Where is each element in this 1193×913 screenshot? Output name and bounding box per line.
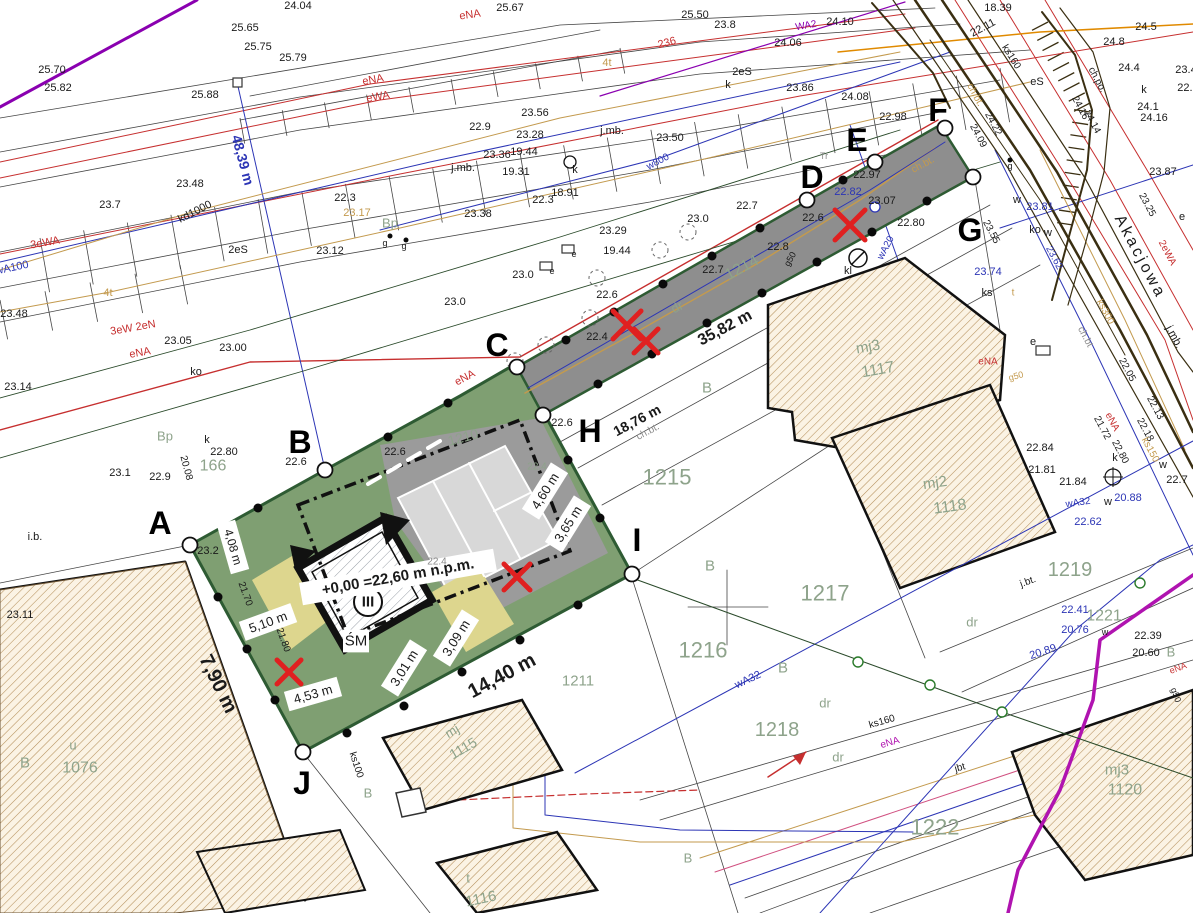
boundary-letter-B: B	[288, 424, 311, 460]
map-label: 23.50	[656, 132, 684, 144]
map-label: 23.8	[714, 19, 735, 31]
parcel-number-label: mj3	[1105, 762, 1129, 779]
map-label: 23.12	[316, 245, 344, 257]
map-label: 23.2	[197, 545, 218, 557]
map-label: e	[1179, 211, 1185, 223]
map-label: k	[204, 434, 210, 446]
survey-point-dot	[343, 729, 352, 738]
fence-post-symbol	[997, 707, 1007, 717]
map-label: i.b.	[28, 531, 43, 543]
map-label: w	[1101, 627, 1109, 637]
map-label: 22.84	[1026, 442, 1054, 454]
survey-point-dot	[868, 228, 877, 237]
parcel-number-label: t	[466, 871, 470, 886]
map-label: 22.9	[469, 121, 490, 133]
map-label: 23.11	[7, 609, 34, 621]
fence-post-symbol	[925, 680, 935, 690]
map-label: k	[1112, 452, 1118, 464]
map-label: 2eS	[732, 66, 752, 78]
map-label: 25.70	[38, 64, 66, 76]
parcel-number-label: 1219	[1048, 559, 1093, 581]
parcel-number-label: mj2	[922, 473, 948, 493]
map-label: 24.4	[1118, 62, 1139, 74]
map-label: 22.41	[1061, 604, 1089, 616]
map-label: g	[1007, 161, 1012, 171]
boundary-point-marker	[296, 745, 311, 760]
map-label: 22.98	[879, 111, 907, 123]
pole-dot	[388, 234, 393, 239]
map-label: 23.17	[343, 207, 371, 219]
map-label: 22.62	[1074, 516, 1102, 528]
parcel-number-label: Bp	[382, 216, 398, 231]
map-label: 23.0	[512, 269, 533, 281]
map-label: 23.56	[521, 107, 549, 119]
boundary-point-marker	[536, 408, 551, 423]
map-label: 22.5	[1177, 82, 1193, 94]
map-label: 23.0	[444, 296, 465, 308]
parcel-number-label: dr	[966, 615, 978, 630]
map-label: 20.76	[1061, 624, 1089, 636]
boundary-letter-J: J	[293, 765, 311, 801]
parcel-number-label: B	[1167, 645, 1176, 660]
boundary-letter-G: G	[958, 212, 983, 248]
map-label: 22.6	[802, 212, 823, 224]
boundary-letter-E: E	[846, 122, 867, 158]
boundary-letter-A: A	[148, 505, 171, 541]
map-label: w	[1158, 459, 1167, 471]
map-label: 23.86	[786, 82, 814, 94]
boundary-point-marker	[318, 463, 333, 478]
map-label: 25.67	[496, 2, 524, 14]
fence-post-symbol	[1135, 578, 1145, 588]
map-label: 22.7	[736, 200, 757, 212]
map-label: 23.48	[0, 308, 28, 320]
parcel-number-label: B	[20, 755, 30, 772]
map-label: 20.88	[1114, 492, 1142, 504]
map-label: 24.10	[826, 16, 854, 28]
survey-point-dot	[659, 280, 668, 289]
map-label: k	[725, 79, 731, 91]
map-label: 24.8	[1103, 36, 1124, 48]
boundary-point-marker	[510, 360, 525, 375]
fence-post-symbol	[853, 657, 863, 667]
parcel-number-label: dr	[832, 750, 844, 765]
survey-point-dot	[708, 252, 717, 261]
map-label: 19.31	[502, 166, 530, 178]
map-label: ks	[982, 287, 994, 299]
map-label: 23.87	[1149, 166, 1177, 178]
survey-point-dot	[564, 456, 573, 465]
parcel-number-label: B	[705, 558, 715, 575]
map-label: 23.00	[219, 342, 247, 354]
map-label: 4t	[103, 287, 112, 299]
survey-map-canvas: 25.7025.8225.6525.7525.7925.8824.04eNA25…	[0, 0, 1193, 913]
parcel-number-label: 1076	[62, 760, 98, 777]
map-label: eNA	[978, 357, 998, 368]
survey-point-dot	[400, 702, 409, 711]
map-label: t	[1012, 288, 1015, 299]
map-label: 22.82	[834, 186, 862, 198]
map-label: e	[1030, 336, 1036, 348]
map-label: 23.07	[868, 195, 896, 207]
map-label: 22.6	[384, 446, 405, 458]
map-label: 23.29	[599, 225, 627, 237]
boundary-point-marker	[966, 170, 981, 185]
map-label: e	[571, 249, 576, 259]
parcel-number-label: 1216	[679, 638, 728, 663]
parcel-number-label: 166	[200, 458, 227, 475]
map-label: 24.16	[1140, 112, 1168, 124]
map-label: g	[401, 241, 406, 251]
survey-point-dot	[271, 696, 280, 705]
map-label: 23.05	[164, 335, 192, 347]
map-label: 24.08	[841, 91, 869, 103]
map-label: 23.4	[1175, 64, 1193, 76]
survey-point-dot	[813, 258, 822, 267]
boundary-point-marker	[625, 567, 640, 582]
map-label: 22.7	[1166, 474, 1187, 486]
dimension-label: III	[362, 594, 375, 611]
map-label: 20.60	[1132, 647, 1160, 659]
parcel-number-label: 1211	[562, 673, 594, 690]
map-label: 22.4	[427, 557, 447, 568]
map-label: 23.74	[974, 266, 1002, 278]
map-label: 22.97	[853, 169, 881, 181]
parcel-number-label: 1218	[755, 719, 800, 741]
survey-point-dot	[758, 289, 767, 298]
map-label: 24.06	[774, 37, 802, 49]
map-label: eS	[1030, 76, 1043, 88]
survey-point-dot	[458, 668, 467, 677]
map-label: k	[572, 164, 578, 176]
map-label: 4t	[602, 57, 611, 69]
map-label: e	[549, 266, 554, 276]
survey-point-dot	[444, 399, 453, 408]
map-label: 24.5	[1135, 21, 1156, 33]
parcel-number-label: u	[69, 738, 76, 753]
survey-point-dot	[839, 176, 848, 185]
map-label: 23.0	[687, 213, 708, 225]
map-label: j.mb.	[599, 125, 624, 137]
map-label: 2eS	[228, 244, 248, 256]
parcel-number-label: B	[364, 786, 373, 801]
map-label: w	[1103, 496, 1112, 508]
map-label: 18.39	[984, 2, 1012, 14]
map-label: 22.80	[897, 217, 925, 229]
map-label: 22.80	[210, 446, 238, 458]
map-label: 22.4	[586, 331, 607, 343]
survey-point-dot	[214, 593, 223, 602]
map-label: 23.36	[483, 149, 511, 161]
map-label: 23.81	[1026, 201, 1054, 213]
boundary-letter-I: I	[633, 522, 642, 558]
map-label: 23.7	[99, 199, 120, 211]
map-label: 23.14	[4, 381, 32, 393]
parcel-number-label: 1215	[643, 465, 692, 490]
parcel-number-label: 1120	[1108, 782, 1143, 799]
map-label: 25.75	[244, 41, 272, 53]
map-label: 18.91	[551, 187, 579, 199]
map-label: 19.44	[603, 245, 631, 257]
map-label: 25.65	[231, 22, 259, 34]
survey-point-dot	[516, 636, 525, 645]
map-label: 22.7	[702, 264, 723, 276]
survey-point-dot	[923, 197, 932, 206]
survey-point-dot	[384, 433, 393, 442]
map-label: j.mb.	[450, 162, 475, 174]
map-label: 22.3	[532, 194, 553, 206]
survey-point-dot	[254, 504, 263, 513]
boundary-point-marker	[183, 538, 198, 553]
map-label: 25.79	[279, 52, 307, 64]
parcel-number-label: B	[684, 851, 693, 866]
boundary-letter-F: F	[928, 92, 948, 128]
survey-point-dot	[756, 224, 765, 233]
parcel-number-label: 1222	[911, 815, 960, 840]
utility-box-symbol	[233, 78, 242, 87]
map-label: 22.8	[767, 241, 788, 253]
map-label: 22.39	[1134, 630, 1162, 642]
map-label: 22.6	[551, 417, 572, 429]
boundary-letter-C: C	[485, 327, 508, 363]
map-label: 24.04	[284, 0, 312, 12]
annex	[396, 788, 426, 817]
parcel-number-label: 1221	[1086, 608, 1122, 625]
dimension-label: ŚM	[345, 632, 368, 650]
map-label: 22.9	[149, 471, 170, 483]
map-label: kl	[844, 265, 852, 277]
survey-point-dot	[243, 645, 252, 654]
map-label: 23.48	[176, 178, 204, 190]
survey-point-dot	[574, 601, 583, 610]
map-label: 25.88	[191, 89, 219, 101]
map-label: 23.1	[109, 467, 130, 479]
map-label: 23.38	[464, 208, 492, 220]
site-plan-map: 25.7025.8225.6525.7525.7925.8824.04eNA25…	[0, 0, 1193, 913]
map-label: ko	[190, 366, 202, 378]
map-label: ko	[1029, 224, 1041, 236]
boundary-point-marker	[868, 155, 883, 170]
parcel-number-label: dr	[819, 696, 831, 711]
survey-point-dot	[596, 514, 605, 523]
map-label: 22.3	[334, 192, 355, 204]
map-label: g	[382, 238, 387, 248]
utility-box-symbol	[1036, 346, 1050, 355]
map-label: 25.50	[681, 9, 709, 21]
map-label: 23.28	[516, 129, 544, 141]
map-label: w	[1012, 194, 1021, 206]
survey-point-dot	[562, 336, 571, 345]
map-label: 21.81	[1028, 464, 1056, 476]
survey-point-dot	[594, 380, 603, 389]
parcel-number-label: B	[778, 660, 788, 677]
parcel-number-label: 1217	[801, 581, 850, 606]
parcel-number-label: Bp	[157, 429, 173, 444]
map-label: k	[1141, 84, 1147, 96]
boundary-letter-H: H	[578, 413, 601, 449]
map-label: w	[1043, 227, 1052, 239]
map-label: 19.44	[510, 146, 538, 158]
parcel-number-label: 22.4	[527, 462, 547, 473]
parcel-number-label: B	[702, 380, 712, 397]
map-label: 22.6	[596, 289, 617, 301]
map-label: 21.84	[1059, 476, 1087, 488]
map-label: 25.82	[44, 82, 72, 94]
boundary-letter-D: D	[800, 159, 823, 195]
